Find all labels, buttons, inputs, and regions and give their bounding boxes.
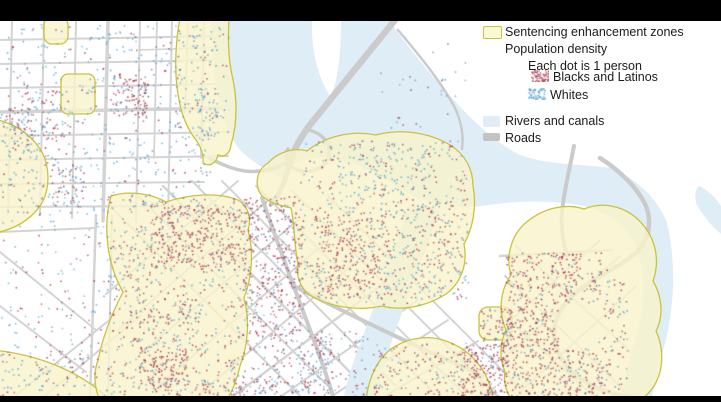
population-dots-layer [0, 0, 721, 402]
top-black-bar [0, 0, 721, 21]
map-figure: Sentencing enhancement zones Population … [0, 0, 721, 402]
bottom-black-bar [0, 396, 721, 402]
